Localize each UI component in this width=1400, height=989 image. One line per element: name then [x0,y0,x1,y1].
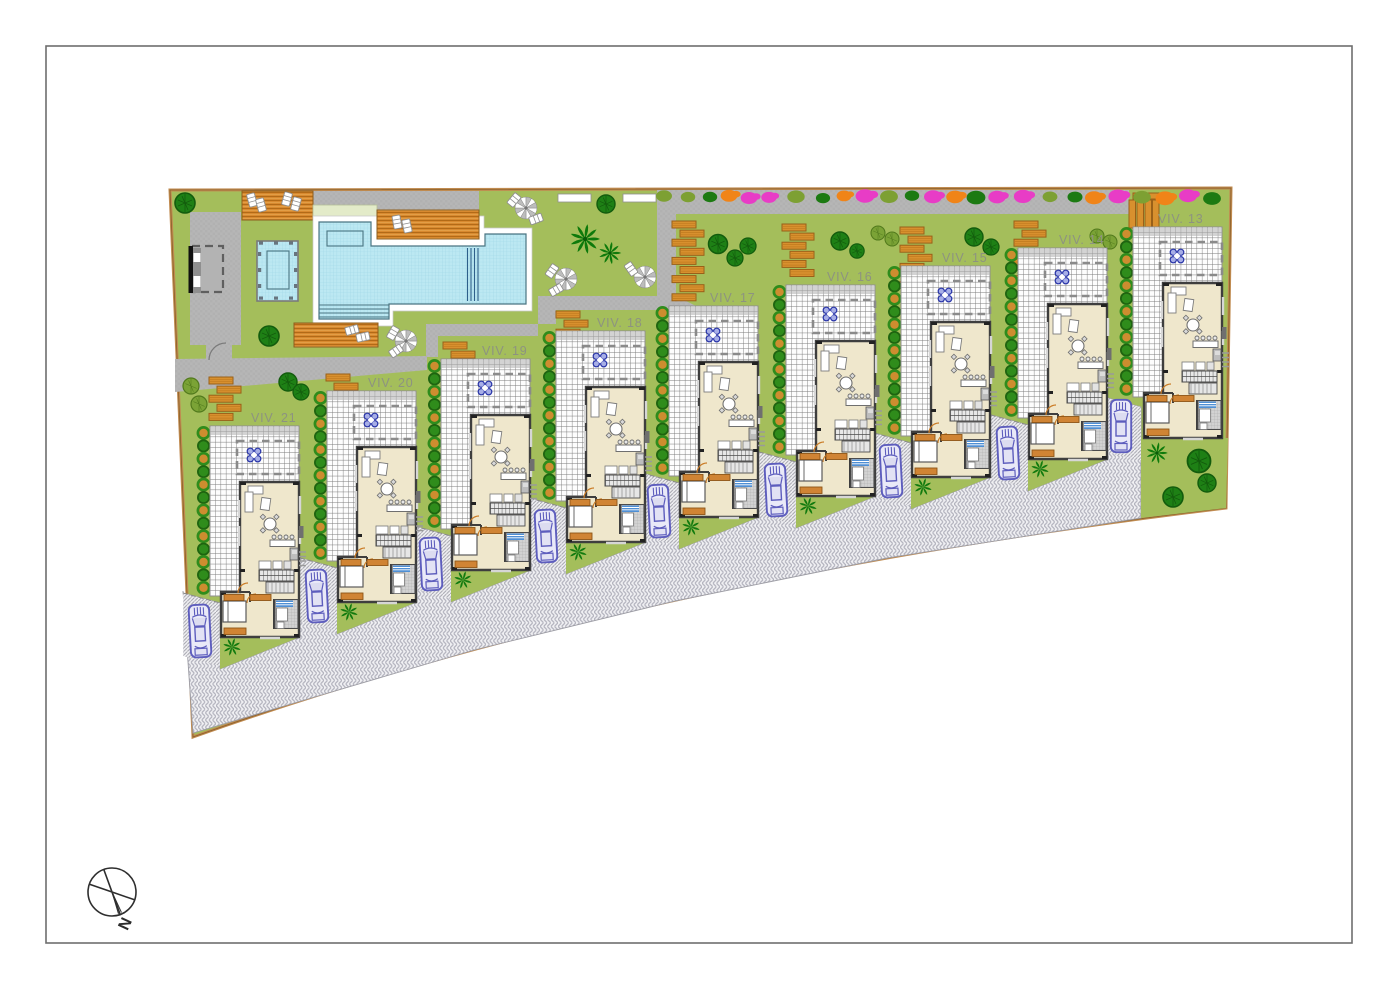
svg-text:VIV. 20: VIV. 20 [368,376,413,390]
svg-text:VIV. 15: VIV. 15 [942,251,987,265]
svg-text:VIV. 16: VIV. 16 [827,270,872,284]
svg-text:VIV. 17: VIV. 17 [710,291,755,305]
svg-text:VIV. 14: VIV. 14 [1059,233,1104,247]
svg-text:VIV. 18: VIV. 18 [597,316,642,330]
svg-text:VIV. 13: VIV. 13 [1158,212,1203,226]
svg-text:VIV. 21: VIV. 21 [251,411,296,425]
svg-text:VIV. 19: VIV. 19 [482,344,527,358]
